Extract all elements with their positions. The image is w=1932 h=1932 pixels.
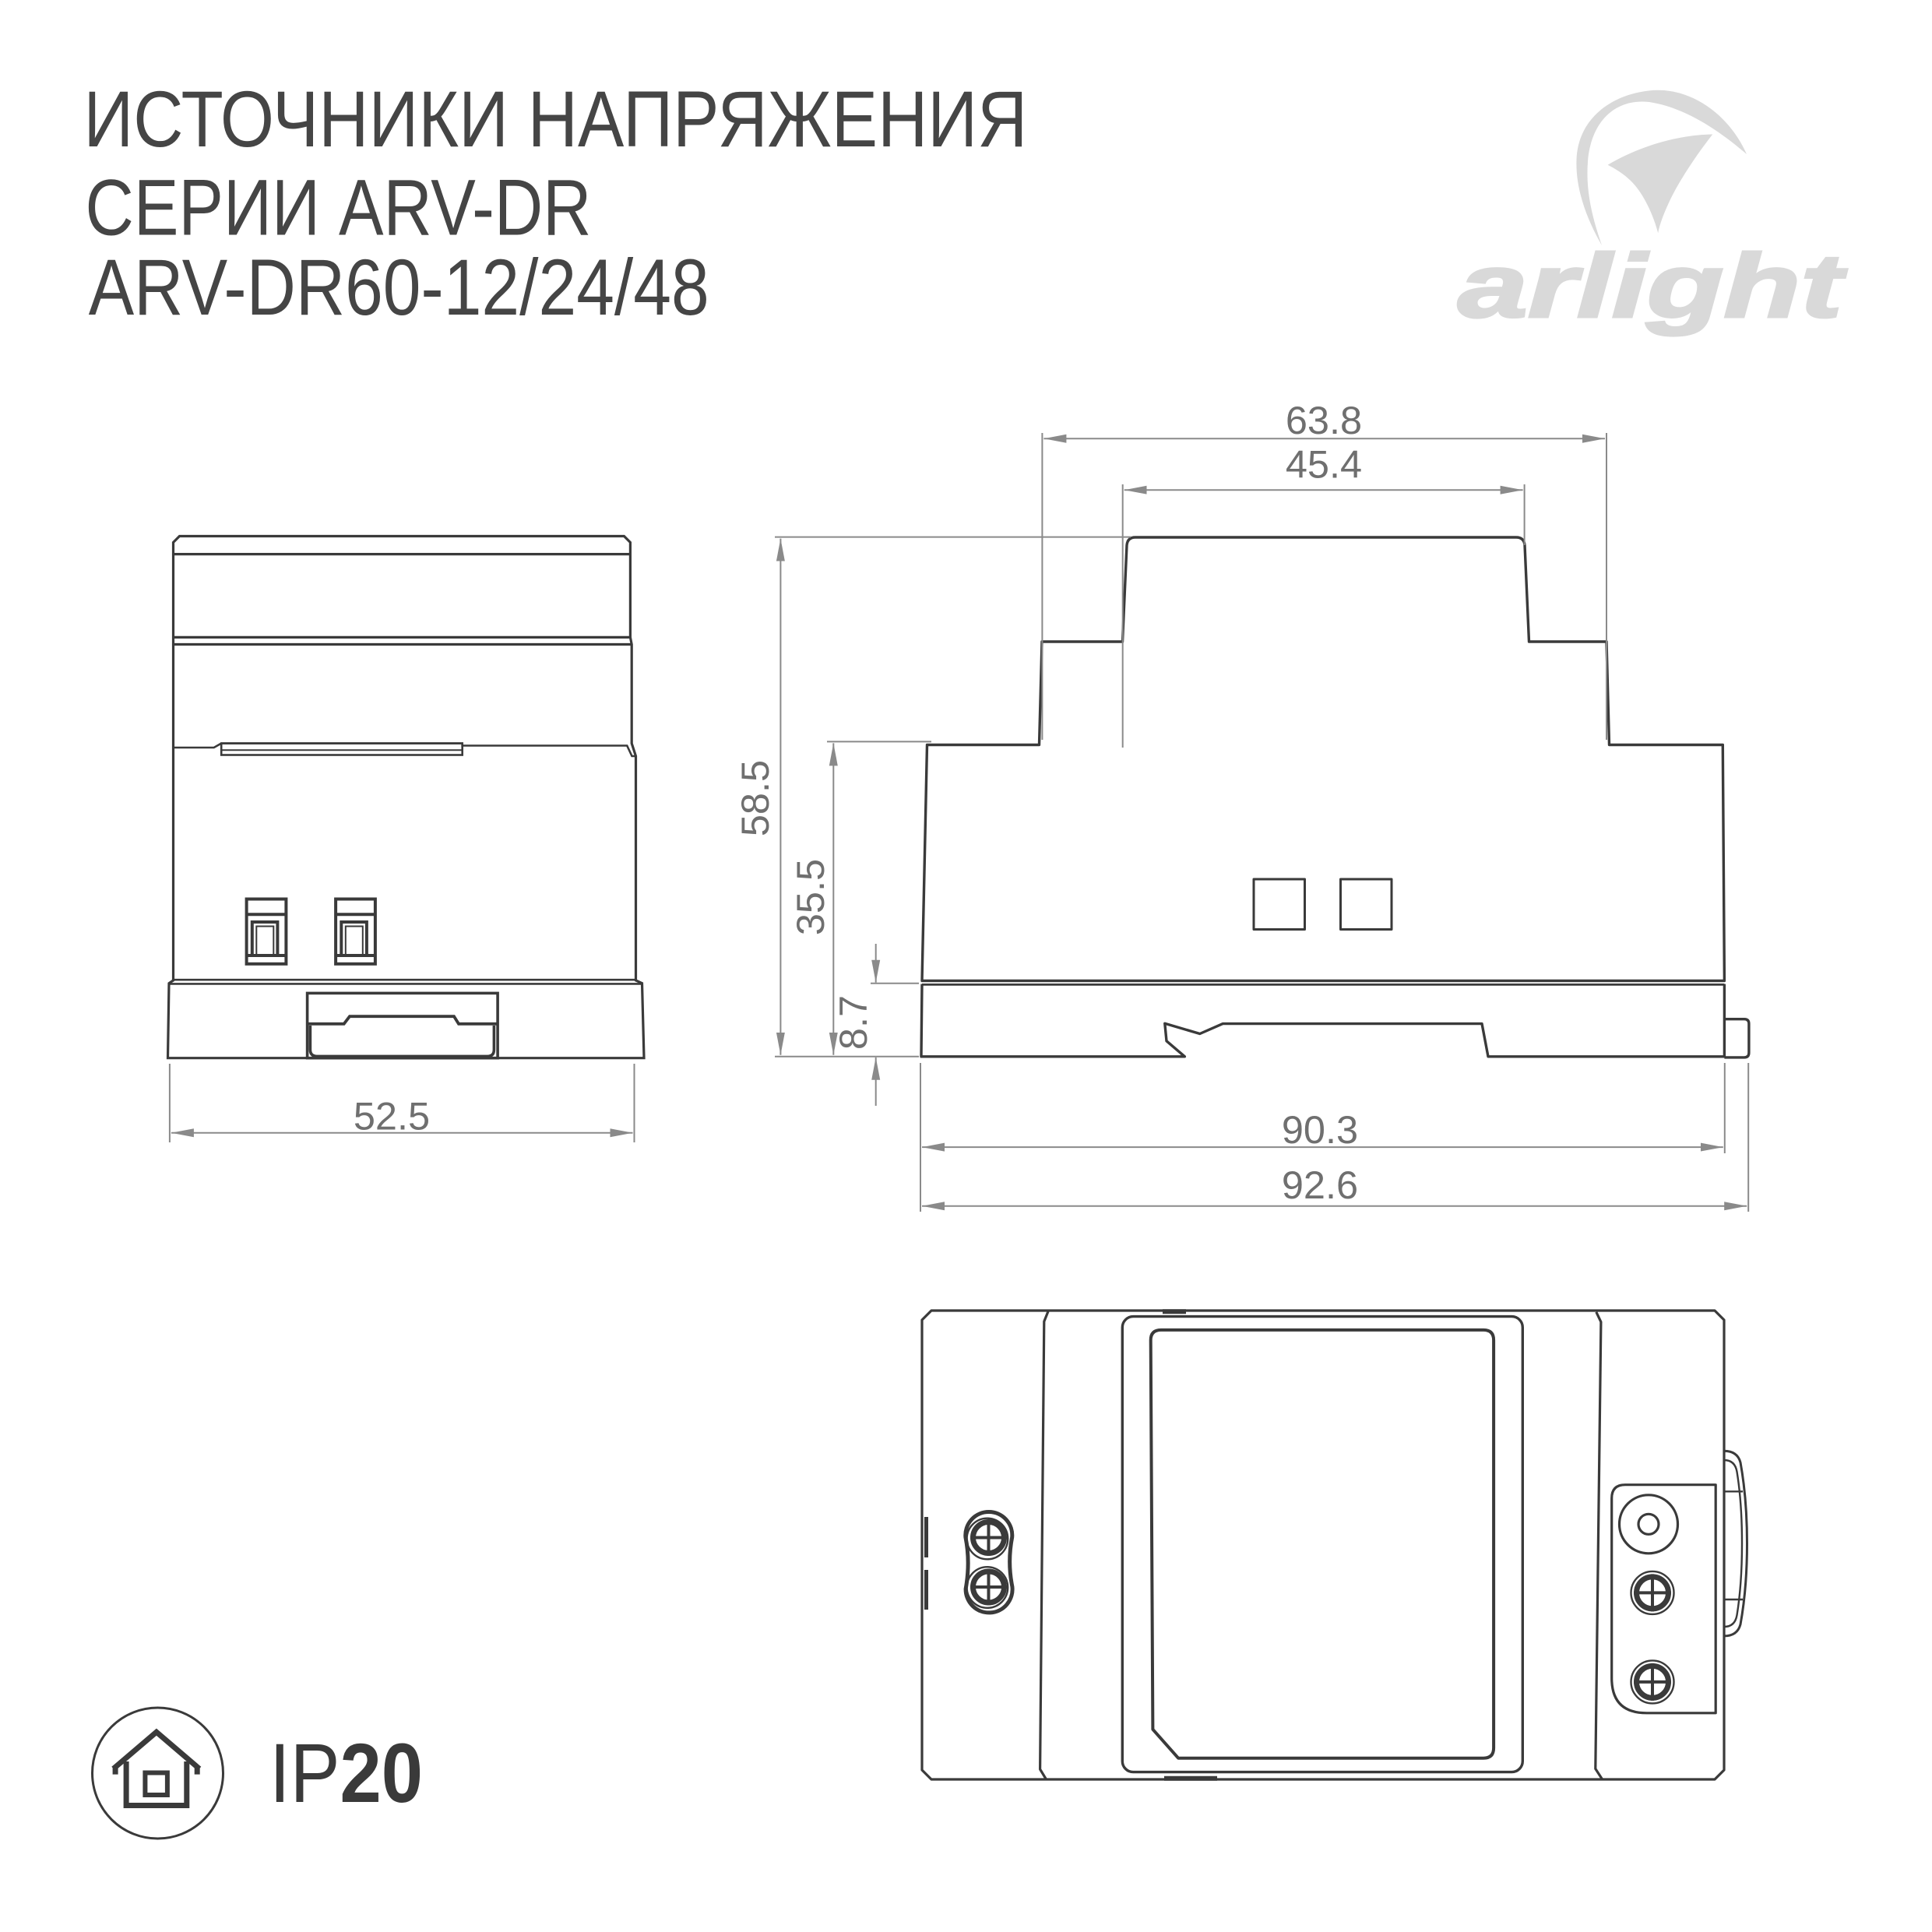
svg-text:СЕРИИ ARV-DR: СЕРИИ ARV-DR — [86, 163, 592, 252]
svg-text:52.5: 52.5 — [354, 1094, 430, 1138]
svg-text:58.5: 58.5 — [733, 760, 777, 836]
svg-text:ИСТОЧНИКИ НАПРЯЖЕНИЯ: ИСТОЧНИКИ НАПРЯЖЕНИЯ — [83, 74, 1027, 164]
svg-text:8.7: 8.7 — [831, 995, 875, 1050]
svg-text:92.6: 92.6 — [1282, 1163, 1358, 1207]
svg-text:63.8: 63.8 — [1286, 398, 1362, 442]
svg-text:IP20: IP20 — [269, 1726, 423, 1820]
svg-text:35.5: 35.5 — [788, 859, 832, 935]
svg-text:ARV-DR60-12/24/48: ARV-DR60-12/24/48 — [89, 242, 709, 332]
svg-text:45.4: 45.4 — [1286, 442, 1362, 487]
svg-text:arlight: arlight — [1458, 235, 1847, 336]
svg-text:90.3: 90.3 — [1282, 1107, 1358, 1152]
